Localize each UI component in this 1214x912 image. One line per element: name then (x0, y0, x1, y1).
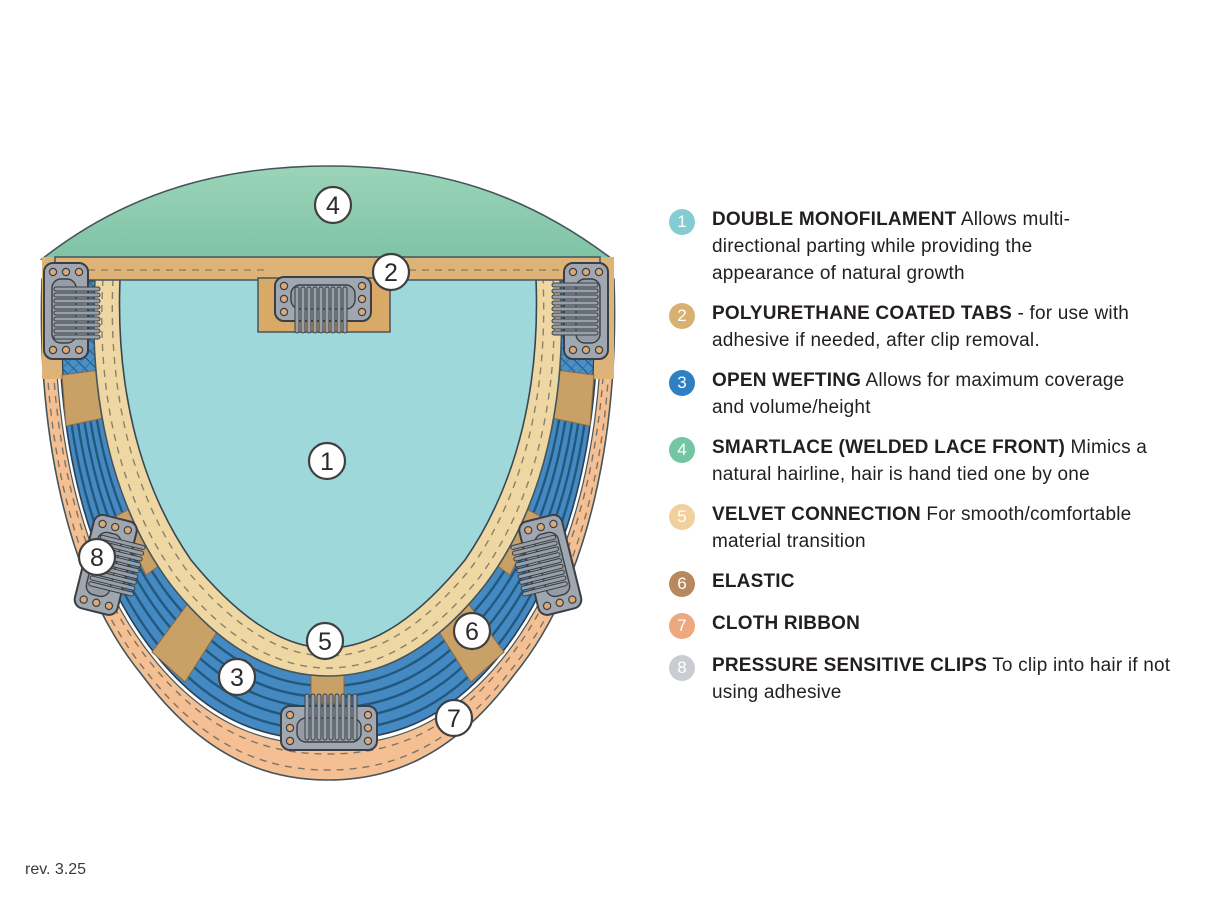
legend-item-title: DOUBLE MONOFILAMENT (712, 209, 956, 230)
legend-item-title: POLYURETHANE COATED TABS (712, 303, 1012, 324)
legend-item-desc-line: appearance of natural growth (712, 260, 1070, 287)
callout-number: 6 (465, 618, 479, 646)
callout-circle-1: 1 (309, 443, 345, 479)
legend-item-polyurethane-tabs: 2 POLYURETHANE COATED TABS - for use wit… (669, 300, 1199, 354)
legend-item-cloth-ribbon: 7 CLOTH RIBBON (669, 610, 1199, 639)
callout-circle-6: 6 (454, 613, 490, 649)
legend-item-desc-line: using adhesive (712, 679, 1170, 706)
legend-number-badge: 8 (669, 655, 695, 681)
legend-item-desc-line: adhesive if needed, after clip removal. (712, 327, 1129, 354)
legend-item-text: VELVET CONNECTION For smooth/comfortable… (712, 501, 1131, 555)
legend-item-velvet-connection: 5 VELVET CONNECTION For smooth/comfortab… (669, 501, 1199, 555)
callout-circle-8: 8 (79, 539, 115, 575)
legend-item-smartlace: 4 SMARTLACE (WELDED LACE FRONT) Mimics a… (669, 434, 1199, 488)
legend-item-text: ELASTIC (712, 568, 795, 595)
legend-item-desc: Allows multi- (956, 209, 1070, 230)
legend-item-desc: Mimics a (1065, 437, 1147, 458)
legend-item-title: ELASTIC (712, 571, 795, 592)
callout-number: 7 (447, 705, 461, 733)
callout-number: 5 (318, 628, 332, 656)
callout-number: 2 (384, 259, 398, 287)
callout-circle-2: 2 (373, 254, 409, 290)
legend-item-desc-line: material transition (712, 528, 1131, 555)
legend-number-badge: 6 (669, 571, 695, 597)
callout-circle-7: 7 (436, 700, 472, 736)
legend-item-desc-line: natural hairline, hair is hand tied one … (712, 461, 1147, 488)
legend-number-badge: 2 (669, 303, 695, 329)
legend-item-title: OPEN WEFTING (712, 370, 861, 391)
legend-item-elastic: 6 ELASTIC (669, 568, 1199, 597)
callout-circle-5: 5 (307, 623, 343, 659)
legend-number-badge: 5 (669, 504, 695, 530)
legend-item-text: POLYURETHANE COATED TABS - for use with … (712, 300, 1129, 354)
callout-number: 4 (326, 192, 340, 220)
callout-number: 1 (320, 448, 334, 476)
legend-item-title: CLOTH RIBBON (712, 613, 860, 634)
legend-item-open-wefting: 3 OPEN WEFTING Allows for maximum covera… (669, 367, 1199, 421)
legend: 1 DOUBLE MONOFILAMENT Allows multi- dire… (669, 206, 1199, 706)
callout-number: 8 (90, 544, 104, 572)
legend-item-text: SMARTLACE (WELDED LACE FRONT) Mimics a n… (712, 434, 1147, 488)
legend-item-text: PRESSURE SENSITIVE CLIPS To clip into ha… (712, 652, 1170, 706)
legend-item-title: PRESSURE SENSITIVE CLIPS (712, 655, 987, 676)
legend-item-desc: To clip into hair if not (987, 655, 1170, 676)
legend-item-pressure-clips: 8 PRESSURE SENSITIVE CLIPS To clip into … (669, 652, 1199, 706)
legend-item-text: DOUBLE MONOFILAMENT Allows multi- direct… (712, 206, 1070, 287)
legend-number-badge: 7 (669, 613, 695, 639)
legend-item-desc: Allows for maximum coverage (861, 370, 1124, 391)
legend-item-desc: For smooth/comfortable (921, 504, 1132, 525)
callout-circle-4: 4 (315, 187, 351, 223)
legend-item-desc-line: directional parting while providing the (712, 233, 1070, 260)
legend-number-badge: 4 (669, 437, 695, 463)
legend-item-text: CLOTH RIBBON (712, 610, 860, 637)
legend-item-title: SMARTLACE (WELDED LACE FRONT) (712, 437, 1065, 458)
legend-item-text: OPEN WEFTING Allows for maximum coverage… (712, 367, 1124, 421)
callout-number: 3 (230, 664, 244, 692)
legend-item-title: VELVET CONNECTION (712, 504, 921, 525)
wig-cap-diagram: 1 2 3 4 5 6 7 8 (0, 0, 660, 810)
legend-item-desc-line: and volume/height (712, 394, 1124, 421)
revision-label: rev. 3.25 (25, 861, 86, 879)
legend-number-badge: 3 (669, 370, 695, 396)
legend-number-badge: 1 (669, 209, 695, 235)
legend-item-double-monofilament: 1 DOUBLE MONOFILAMENT Allows multi- dire… (669, 206, 1199, 287)
callout-circle-3: 3 (219, 659, 255, 695)
legend-item-desc: - for use with (1012, 303, 1129, 324)
